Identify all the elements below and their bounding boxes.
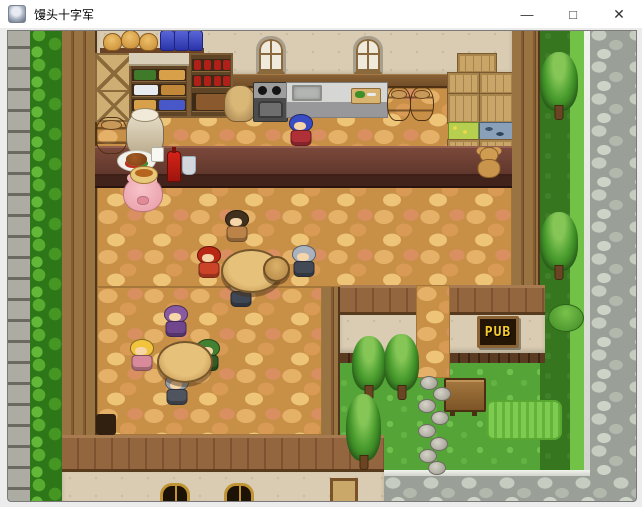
maximize-button[interactable]: □ xyxy=(550,0,596,28)
tree-roadside-1 xyxy=(540,52,578,120)
tree-roadside-2 xyxy=(540,212,578,280)
step-stone-5 xyxy=(418,424,436,438)
title-bar: 馒头十字军 — □ ✕ xyxy=(0,0,642,29)
npc-red-knight[interactable] xyxy=(194,246,223,280)
minimize-button[interactable]: — xyxy=(504,0,550,28)
teddy-bear xyxy=(475,146,503,180)
close-button[interactable]: ✕ xyxy=(596,0,642,28)
tree-yard-2 xyxy=(384,334,419,400)
pub-scene: PUB xyxy=(7,30,637,502)
tree-yard-1 xyxy=(352,336,386,400)
step-stone-8 xyxy=(428,461,446,475)
npc-purple-wizard[interactable] xyxy=(160,305,191,341)
npc-muscle-patron[interactable] xyxy=(222,210,252,246)
window-title: 馒头十字军 xyxy=(34,6,94,23)
step-stone-2 xyxy=(433,387,451,401)
wine-glass xyxy=(182,156,196,175)
step-stone-3 xyxy=(418,399,436,413)
barrel-kitchen-1 xyxy=(387,87,411,121)
app-icon xyxy=(8,5,26,23)
game-window: 馒头十字军 — □ ✕ xyxy=(0,0,642,507)
npc-gray-knight[interactable] xyxy=(289,245,319,281)
npc-blonde-girl[interactable] xyxy=(128,339,156,373)
round-table-2 xyxy=(157,341,213,383)
entity-layer xyxy=(7,30,637,502)
bowl-curry xyxy=(130,166,158,184)
stool-1 xyxy=(263,256,290,282)
bush-roadside xyxy=(548,304,584,332)
step-stone-4 xyxy=(431,411,449,425)
red-bottle xyxy=(167,151,181,182)
npc-bartender[interactable] xyxy=(287,114,315,148)
white-mug xyxy=(151,147,164,162)
barrel-kitchen-2 xyxy=(410,87,434,121)
window-controls: — □ ✕ xyxy=(504,0,642,28)
barrel-left xyxy=(95,117,128,154)
tree-yard-3 xyxy=(346,394,381,470)
game-viewport[interactable]: PUB xyxy=(7,30,637,502)
game-frame: PUB xyxy=(0,28,642,507)
step-stone-6 xyxy=(430,437,448,451)
